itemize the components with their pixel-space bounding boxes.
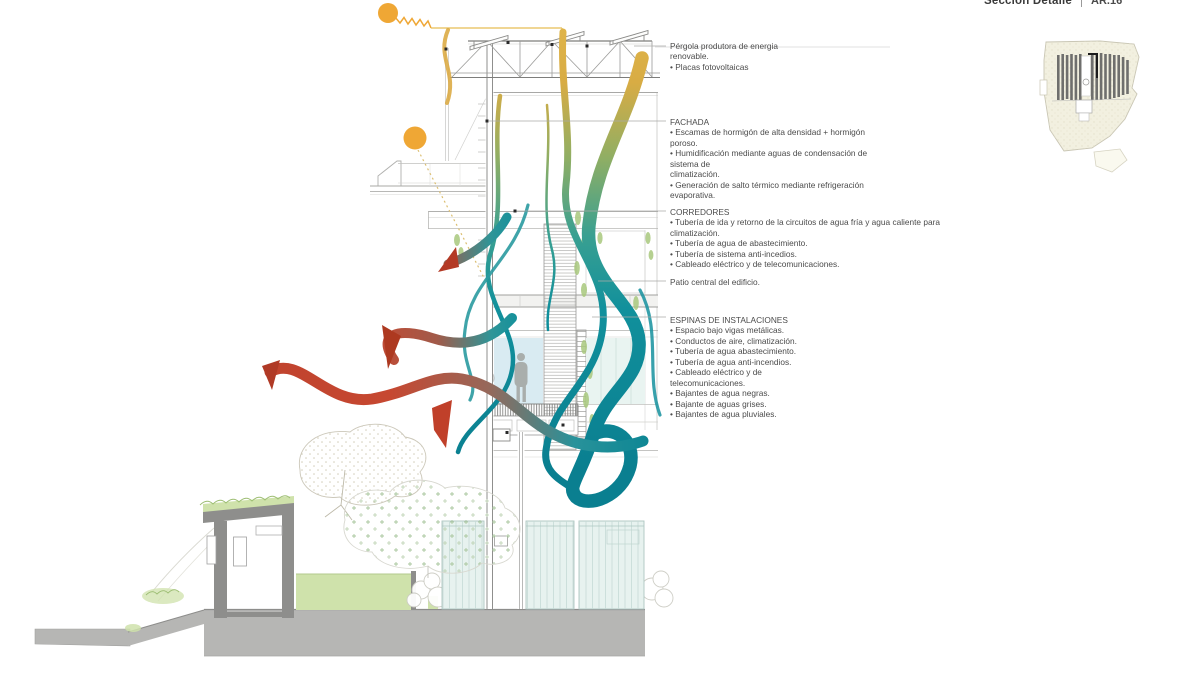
annotation-line: • Escamas de hormigón de alta densidad +… [670,127,867,137]
annotation-line: climatización. [670,169,867,179]
annotation-line: FACHADA [670,117,867,127]
annotation-patio: Patio central del edificio. [670,277,760,287]
basement-building [200,496,294,618]
annotation-line: • Bajante de aguas grises. [670,399,797,409]
annotation-line: • Tubería de agua anti-incendios. [670,357,797,367]
annotation-line: CORREDORES [670,207,940,217]
pergola-truss [450,31,660,78]
presentation-sheet: Sección Detalle AR.16 Pérgola produtora … [0,0,1200,675]
title-block: Sección Detalle AR.16 [984,0,1122,8]
title-divider [1081,0,1082,7]
key-plan-roof-bars [1057,53,1129,100]
annotation-line: Patio central del edificio. [670,277,760,287]
annotation-pergola: Pérgola produtora de energiarenovable.• … [670,41,778,72]
annotation-line: ESPINAS DE INSTALACIONES [670,315,797,325]
annotation-line: • Espacio bajo vigas metálicas. [670,325,797,335]
annotation-line: telecomunicaciones. [670,378,797,388]
sun-ray [395,17,562,94]
annotation-espinas: ESPINAS DE INSTALACIONES• Espacio bajo v… [670,315,797,420]
sun-icon-2 [404,127,427,150]
annotation-line: climatización. [670,228,940,238]
annotation-line: Pérgola produtora de energia [670,41,778,51]
annotation-line: • Cableado eléctrico y de [670,367,797,377]
annotation-line: • Tubería de ida y retorno de la circuit… [670,217,940,227]
annotation-line: poroso. [670,138,867,148]
annotation-line: • Tubería de agua de abastecimiento. [670,238,940,248]
annotation-line: • Tubería de sistema anti-incedios. [670,249,940,259]
solar-panels [470,31,648,51]
annotation-line: • Cableado eléctrico y de telecomunicaci… [670,259,940,269]
annotation-fachada: FACHADA• Escamas de hormigón de alta den… [670,117,867,201]
annotation-line: • Conductos de aire, climatización. [670,336,797,346]
annotation-corredores: CORREDORES• Tubería de ida y retorno de … [670,207,940,270]
sheet-title: Sección Detalle [984,0,1072,7]
annotation-line: • Bajantes de agua negras. [670,388,797,398]
key-plan [1040,41,1139,172]
annotation-line: • Tubería de agua abastecimiento. [670,346,797,356]
annotation-line: • Humidificación mediante aguas de conde… [670,148,867,158]
annotation-line: sistema de [670,159,867,169]
annotation-line: • Generación de salto térmico mediante r… [670,180,867,190]
sheet-code: AR.16 [1091,0,1122,7]
section-drawing [0,0,1200,675]
annotation-line: • Placas fotovoltaicas [670,62,778,72]
annotation-line: • Bajantes de agua pluviales. [670,409,797,419]
sun-icon [378,3,398,23]
annotation-line: renovable. [670,51,778,61]
annotation-line: evaporativa. [670,190,867,200]
ground [35,609,645,656]
